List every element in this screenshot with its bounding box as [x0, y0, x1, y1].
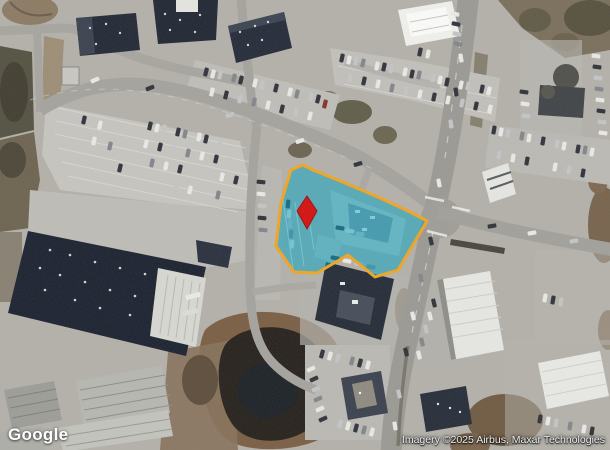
photo-grain	[0, 0, 610, 450]
google-logo: Google	[8, 425, 68, 445]
imagery-attribution: Imagery ©2025 Airbus, Maxar Technologies	[402, 434, 605, 446]
satellite-imagery	[0, 0, 610, 450]
map-viewport[interactable]: Google Imagery ©2025 Airbus, Maxar Techn…	[0, 0, 610, 450]
